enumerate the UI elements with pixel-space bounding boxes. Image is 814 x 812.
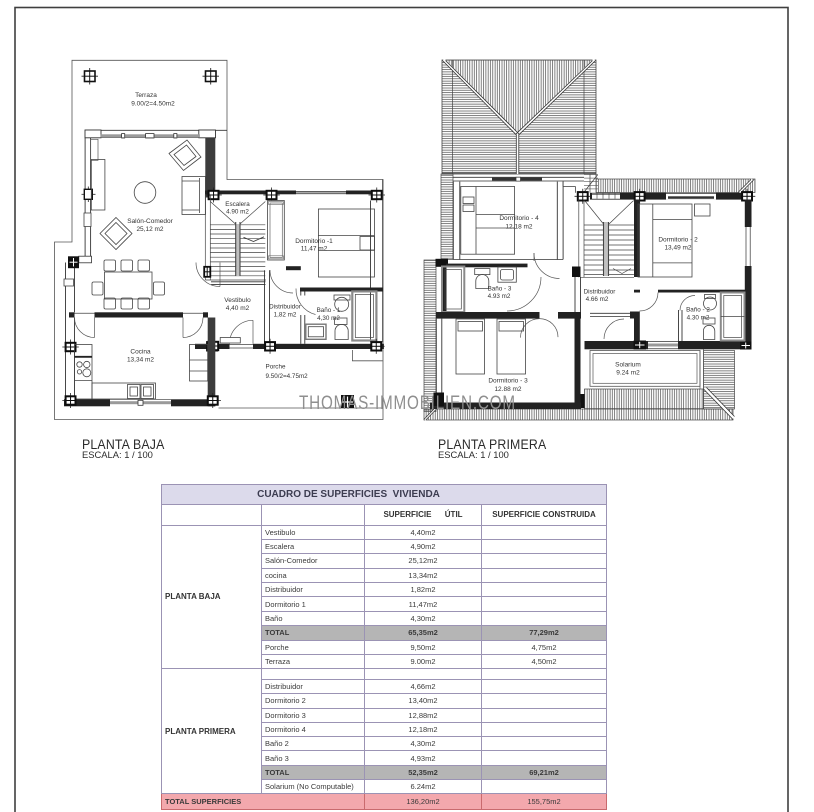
svg-text:9.24 m2: 9.24 m2 bbox=[616, 370, 640, 377]
svg-text:13,49 m2: 13,49 m2 bbox=[664, 245, 691, 252]
svg-text:Baño - 2: Baño - 2 bbox=[686, 307, 710, 314]
svg-text:Solarium: Solarium bbox=[615, 362, 641, 369]
svg-text:25,12 m2: 25,12 m2 bbox=[136, 226, 163, 233]
svg-text:1,82 m2: 1,82 m2 bbox=[274, 312, 297, 319]
svg-text:Baño - 1: Baño - 1 bbox=[317, 307, 341, 314]
svg-text:4,30 m2: 4,30 m2 bbox=[317, 315, 340, 322]
svg-text:Porche: Porche bbox=[266, 364, 286, 371]
svg-text:11,47 m2: 11,47 m2 bbox=[301, 246, 328, 253]
svg-text:4.66 m2: 4.66 m2 bbox=[586, 296, 609, 303]
svg-text:12.88 m2: 12.88 m2 bbox=[494, 386, 521, 393]
svg-text:9.50/2=4.75m2: 9.50/2=4.75m2 bbox=[266, 373, 309, 380]
svg-text:Dormitorio - 3: Dormitorio - 3 bbox=[488, 378, 528, 385]
svg-text:Baño - 3: Baño - 3 bbox=[488, 286, 512, 293]
svg-text:4,40 m2: 4,40 m2 bbox=[226, 305, 250, 312]
svg-text:4.90 m2: 4.90 m2 bbox=[226, 208, 249, 215]
svg-text:9.00/2=4.50m2: 9.00/2=4.50m2 bbox=[131, 101, 175, 108]
svg-text:13,34 m2: 13,34 m2 bbox=[127, 357, 154, 364]
svg-text:Escalera: Escalera bbox=[225, 201, 250, 208]
svg-text:Terraza: Terraza bbox=[135, 92, 157, 99]
svg-text:12.18 m2: 12.18 m2 bbox=[505, 224, 532, 231]
svg-text:Salón-Comedor: Salón-Comedor bbox=[127, 218, 173, 225]
svg-text:Distribuidor: Distribuidor bbox=[269, 304, 301, 311]
svg-text:4.93 m2: 4.93 m2 bbox=[488, 293, 511, 300]
svg-text:Cocina: Cocina bbox=[130, 349, 151, 356]
svg-text:Distribuidor: Distribuidor bbox=[584, 289, 616, 296]
svg-text:4.30 m2: 4.30 m2 bbox=[687, 315, 710, 322]
svg-text:Dormitorio - 4: Dormitorio - 4 bbox=[499, 215, 539, 222]
svg-text:Dormitorio - 2: Dormitorio - 2 bbox=[658, 237, 698, 244]
svg-text:Dormitorio -1: Dormitorio -1 bbox=[295, 238, 333, 245]
svg-text:Vestibulo: Vestibulo bbox=[224, 297, 251, 304]
